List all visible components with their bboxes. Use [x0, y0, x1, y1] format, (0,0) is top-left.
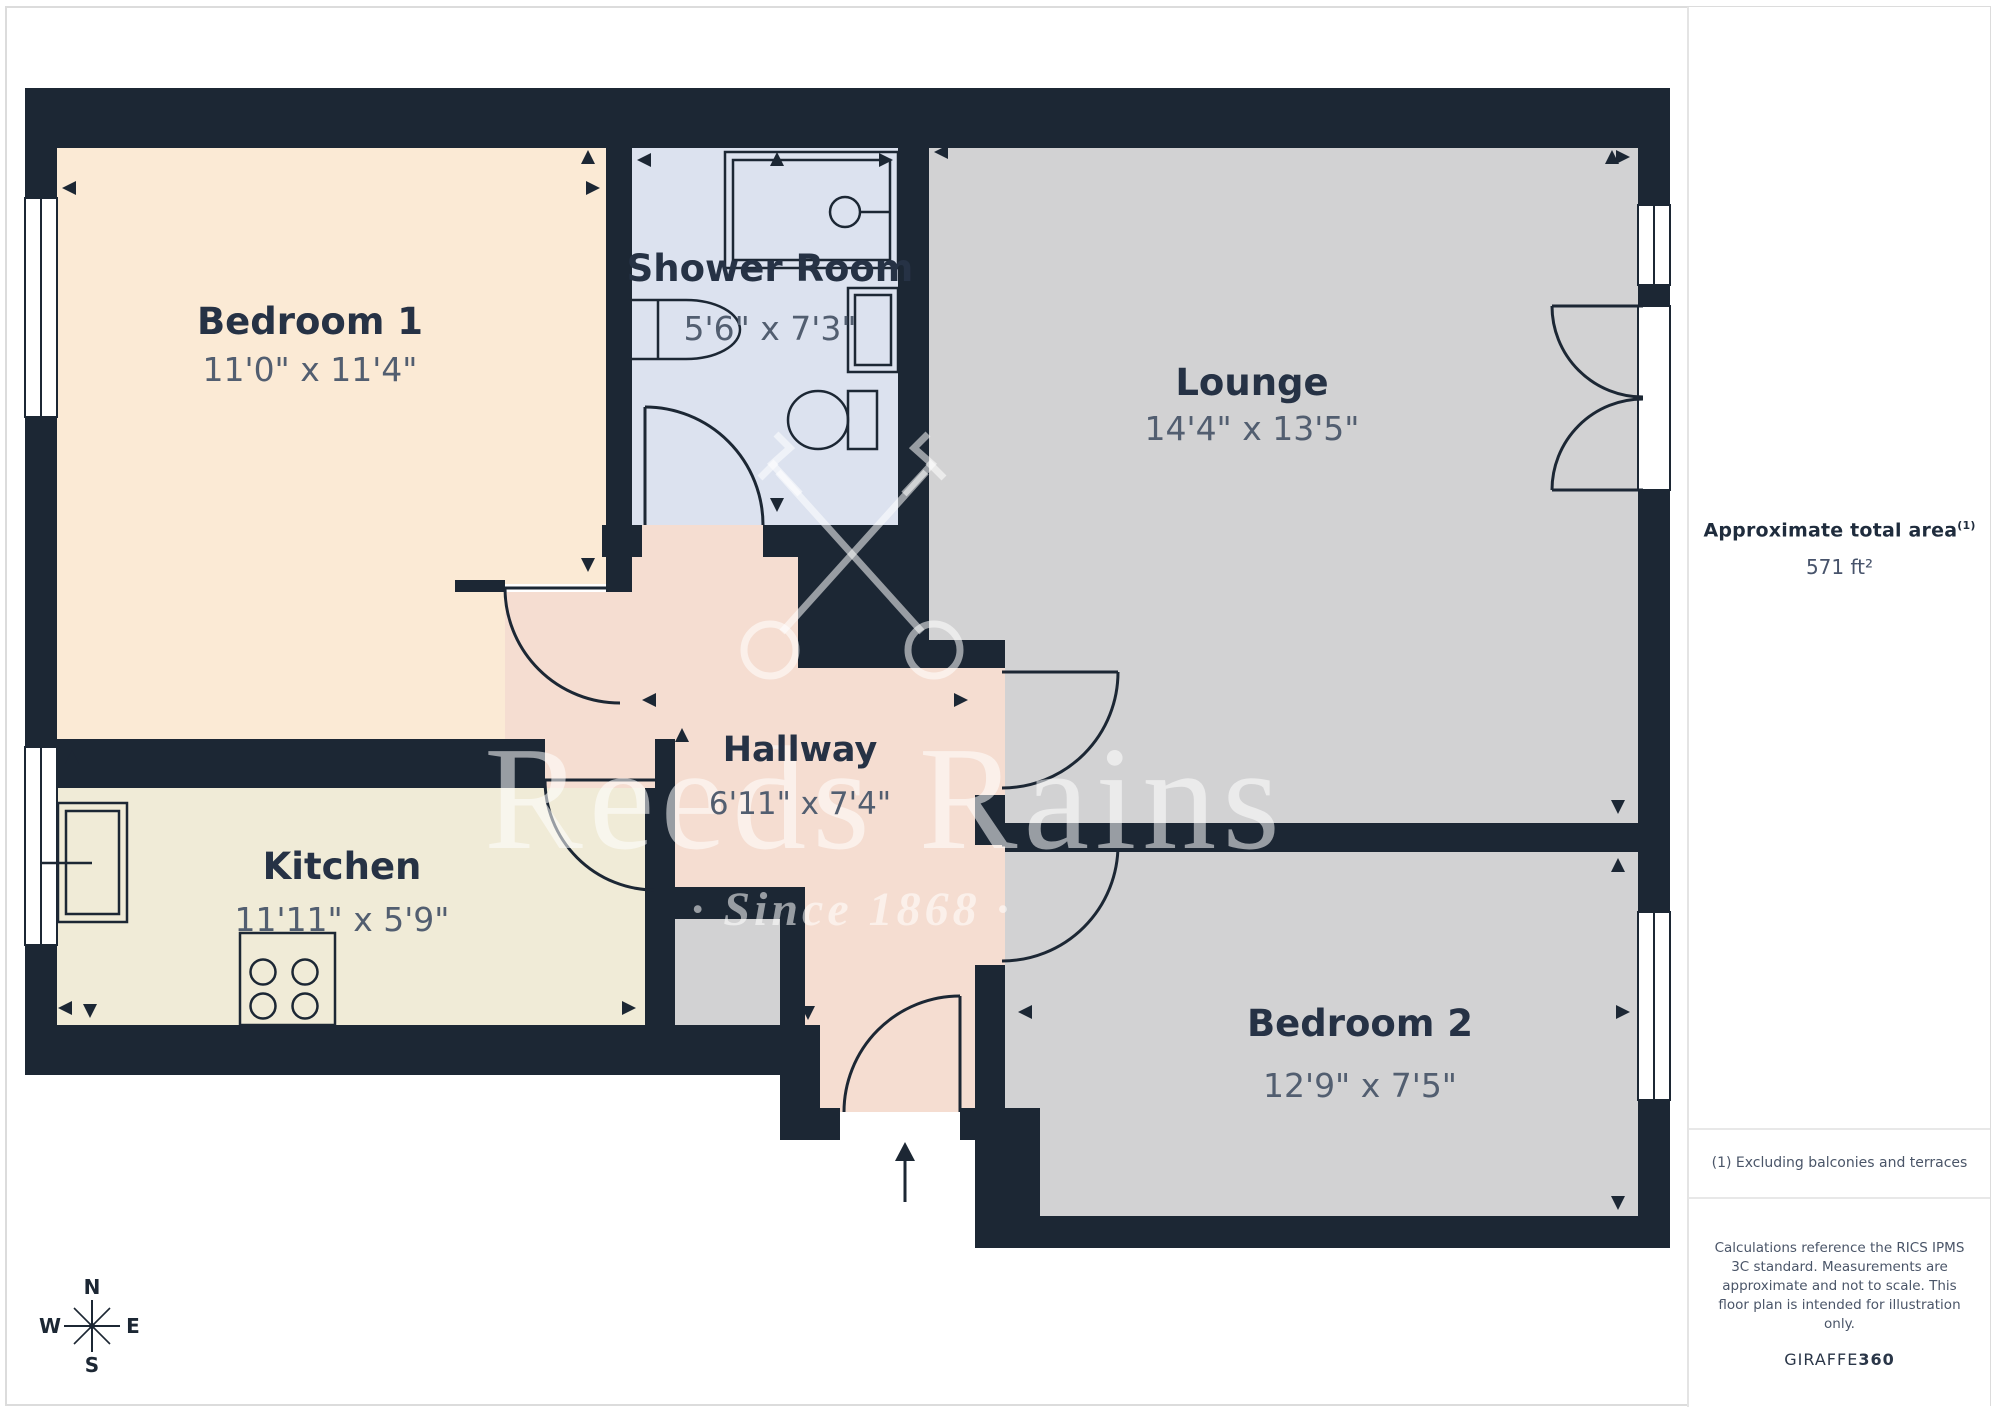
disclaimer-line: only. [1689, 1315, 1990, 1334]
lounge-label: Lounge [1175, 361, 1328, 404]
bedroom2-window [1638, 912, 1670, 1100]
compass-east: E [126, 1314, 140, 1338]
balconies-footnote: (1) Excluding balconies and terraces [1689, 1155, 1990, 1171]
hallway-dims: 6'11" x 7'4" [709, 786, 891, 822]
watermark-tagline: · Since 1868 · [691, 883, 1012, 936]
kitchen-label: Kitchen [263, 845, 422, 888]
shower-room-label: Shower Room [627, 247, 914, 290]
total-area-title-text: Approximate total area [1703, 519, 1957, 541]
disclaimer-line: approximate and not to scale. This [1689, 1277, 1990, 1296]
disclaimer-line: Calculations reference the RICS IPMS [1689, 1239, 1990, 1258]
sidebar-divider-1 [1689, 1128, 1990, 1130]
shower-doorway [642, 525, 763, 557]
disclaimer-line: floor plan is intended for illustration [1689, 1296, 1990, 1315]
compass-west: W [39, 1314, 61, 1338]
bedroom1-label: Bedroom 1 [197, 300, 423, 343]
bedroom2-label: Bedroom 2 [1247, 1002, 1473, 1045]
hallway-label: Hallway [723, 730, 878, 770]
compass-north: N [84, 1275, 101, 1299]
compass-rose: N S W E [39, 1275, 140, 1377]
sidebar-divider-2 [1689, 1197, 1990, 1199]
kitchen-dims: 11'11" x 5'9" [235, 900, 450, 939]
giraffe360-logo-left: GIRAFFE [1784, 1350, 1858, 1369]
lounge-window [1638, 205, 1670, 285]
total-area-title: Approximate total area(1) [1689, 519, 1990, 541]
compass-south: S [85, 1353, 99, 1377]
entrance-arrow [895, 1142, 915, 1202]
total-area-block: Approximate total area(1) 571 ft² [1689, 519, 1990, 579]
giraffe360-logo: GIRAFFE360 [1689, 1350, 1990, 1369]
bedroom1-dims: 11'0" x 11'4" [203, 350, 418, 389]
bedroom2-dims: 12'9" x 7'5" [1263, 1066, 1457, 1105]
sidebar: Approximate total area(1) 571 ft² (1) Ex… [1687, 7, 1990, 1407]
disclaimer-text: Calculations reference the RICS IPMS 3C … [1689, 1239, 1990, 1334]
shower-room-dims: 5'6" x 7'3" [684, 309, 857, 348]
lounge-dims: 14'4" x 13'5" [1145, 409, 1360, 448]
total-area-superscript: (1) [1957, 519, 1975, 532]
giraffe360-logo-right: 360 [1858, 1350, 1894, 1369]
bedroom1-window [25, 198, 57, 417]
total-area-value: 571 ft² [1689, 555, 1990, 579]
shower-room-floor [632, 148, 898, 557]
disclaimer-line: 3C standard. Measurements are [1689, 1258, 1990, 1277]
kitchen-window [25, 747, 57, 945]
